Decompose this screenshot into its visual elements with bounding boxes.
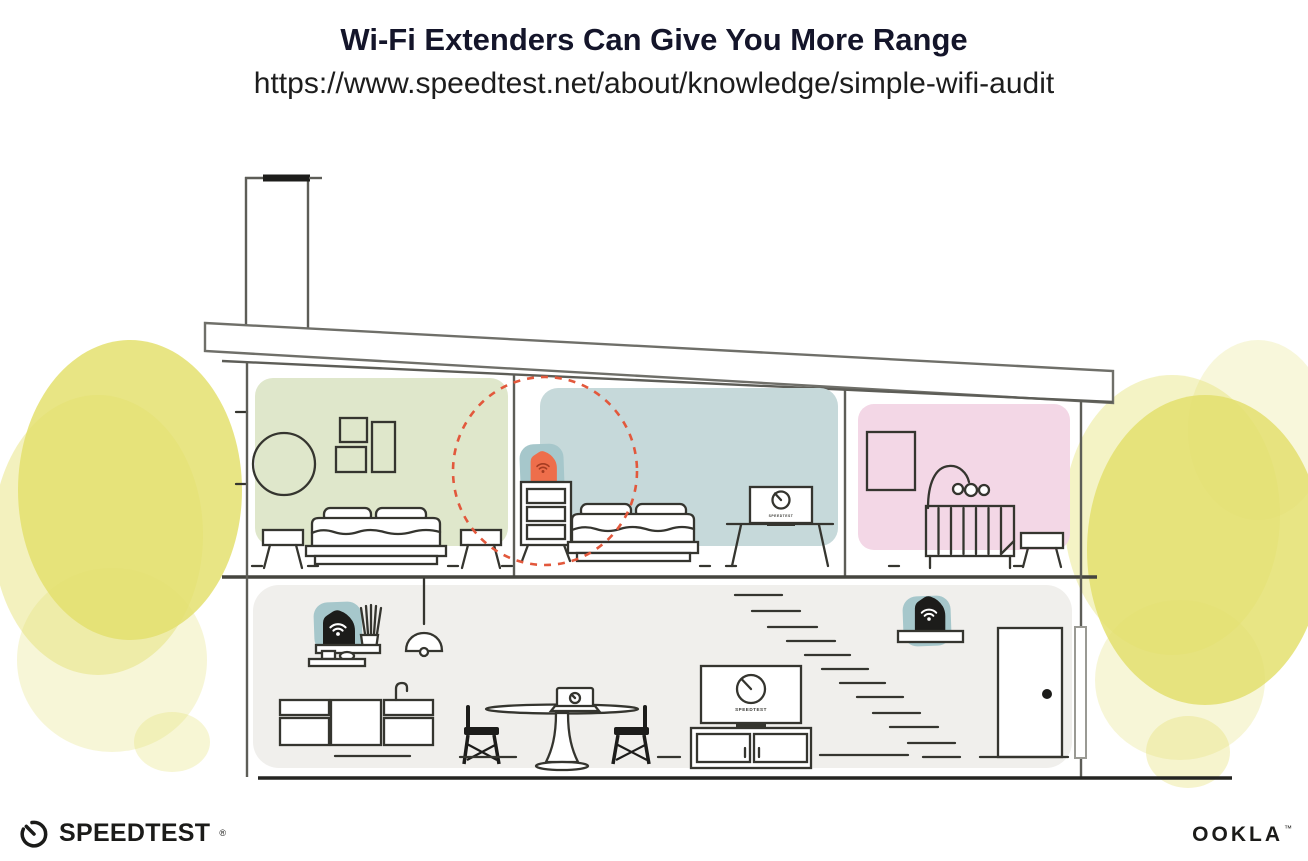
- foliage-right: [1064, 340, 1308, 788]
- ookla-wordmark: OOKLA: [1192, 823, 1283, 847]
- bed: [306, 508, 446, 564]
- laptop: [551, 688, 599, 711]
- source-url: https://www.speedtest.net/about/knowledg…: [0, 67, 1308, 101]
- downspout: [1075, 627, 1086, 758]
- foliage-left: [0, 340, 242, 772]
- ground-floor: SPEEDTEST: [253, 579, 1072, 770]
- infographic: Wi-Fi Extenders Can Give You More Range …: [0, 0, 1308, 861]
- door: [998, 628, 1062, 757]
- speedtest-logo: SPEEDTEST®: [18, 817, 226, 849]
- shelf: [898, 631, 963, 642]
- speedtest-trademark: ®: [219, 828, 226, 838]
- chimney: [245, 175, 322, 334]
- speedtest-gauge-icon: [18, 817, 50, 849]
- house-illustration: SPEEDTEST: [0, 0, 1308, 861]
- speedtest-wordmark: SPEEDTEST: [59, 819, 210, 848]
- door-knob: [1042, 689, 1052, 699]
- header: Wi-Fi Extenders Can Give You More Range …: [0, 0, 1308, 101]
- upper-floor: SPEEDTEST: [236, 374, 1070, 577]
- nightstand-left: [263, 530, 303, 568]
- tv-area: SPEEDTEST: [691, 666, 811, 768]
- lower-shelf: [309, 659, 365, 666]
- extender-dresser: [519, 443, 571, 561]
- ookla-logo: OOKLA ™: [1192, 823, 1292, 847]
- tv-label: SPEEDTEST: [769, 514, 794, 518]
- tv-label: SPEEDTEST: [735, 707, 767, 712]
- page-title: Wi-Fi Extenders Can Give You More Range: [0, 22, 1308, 58]
- ookla-trademark: ™: [1284, 824, 1292, 833]
- chimney-cap: [263, 175, 310, 182]
